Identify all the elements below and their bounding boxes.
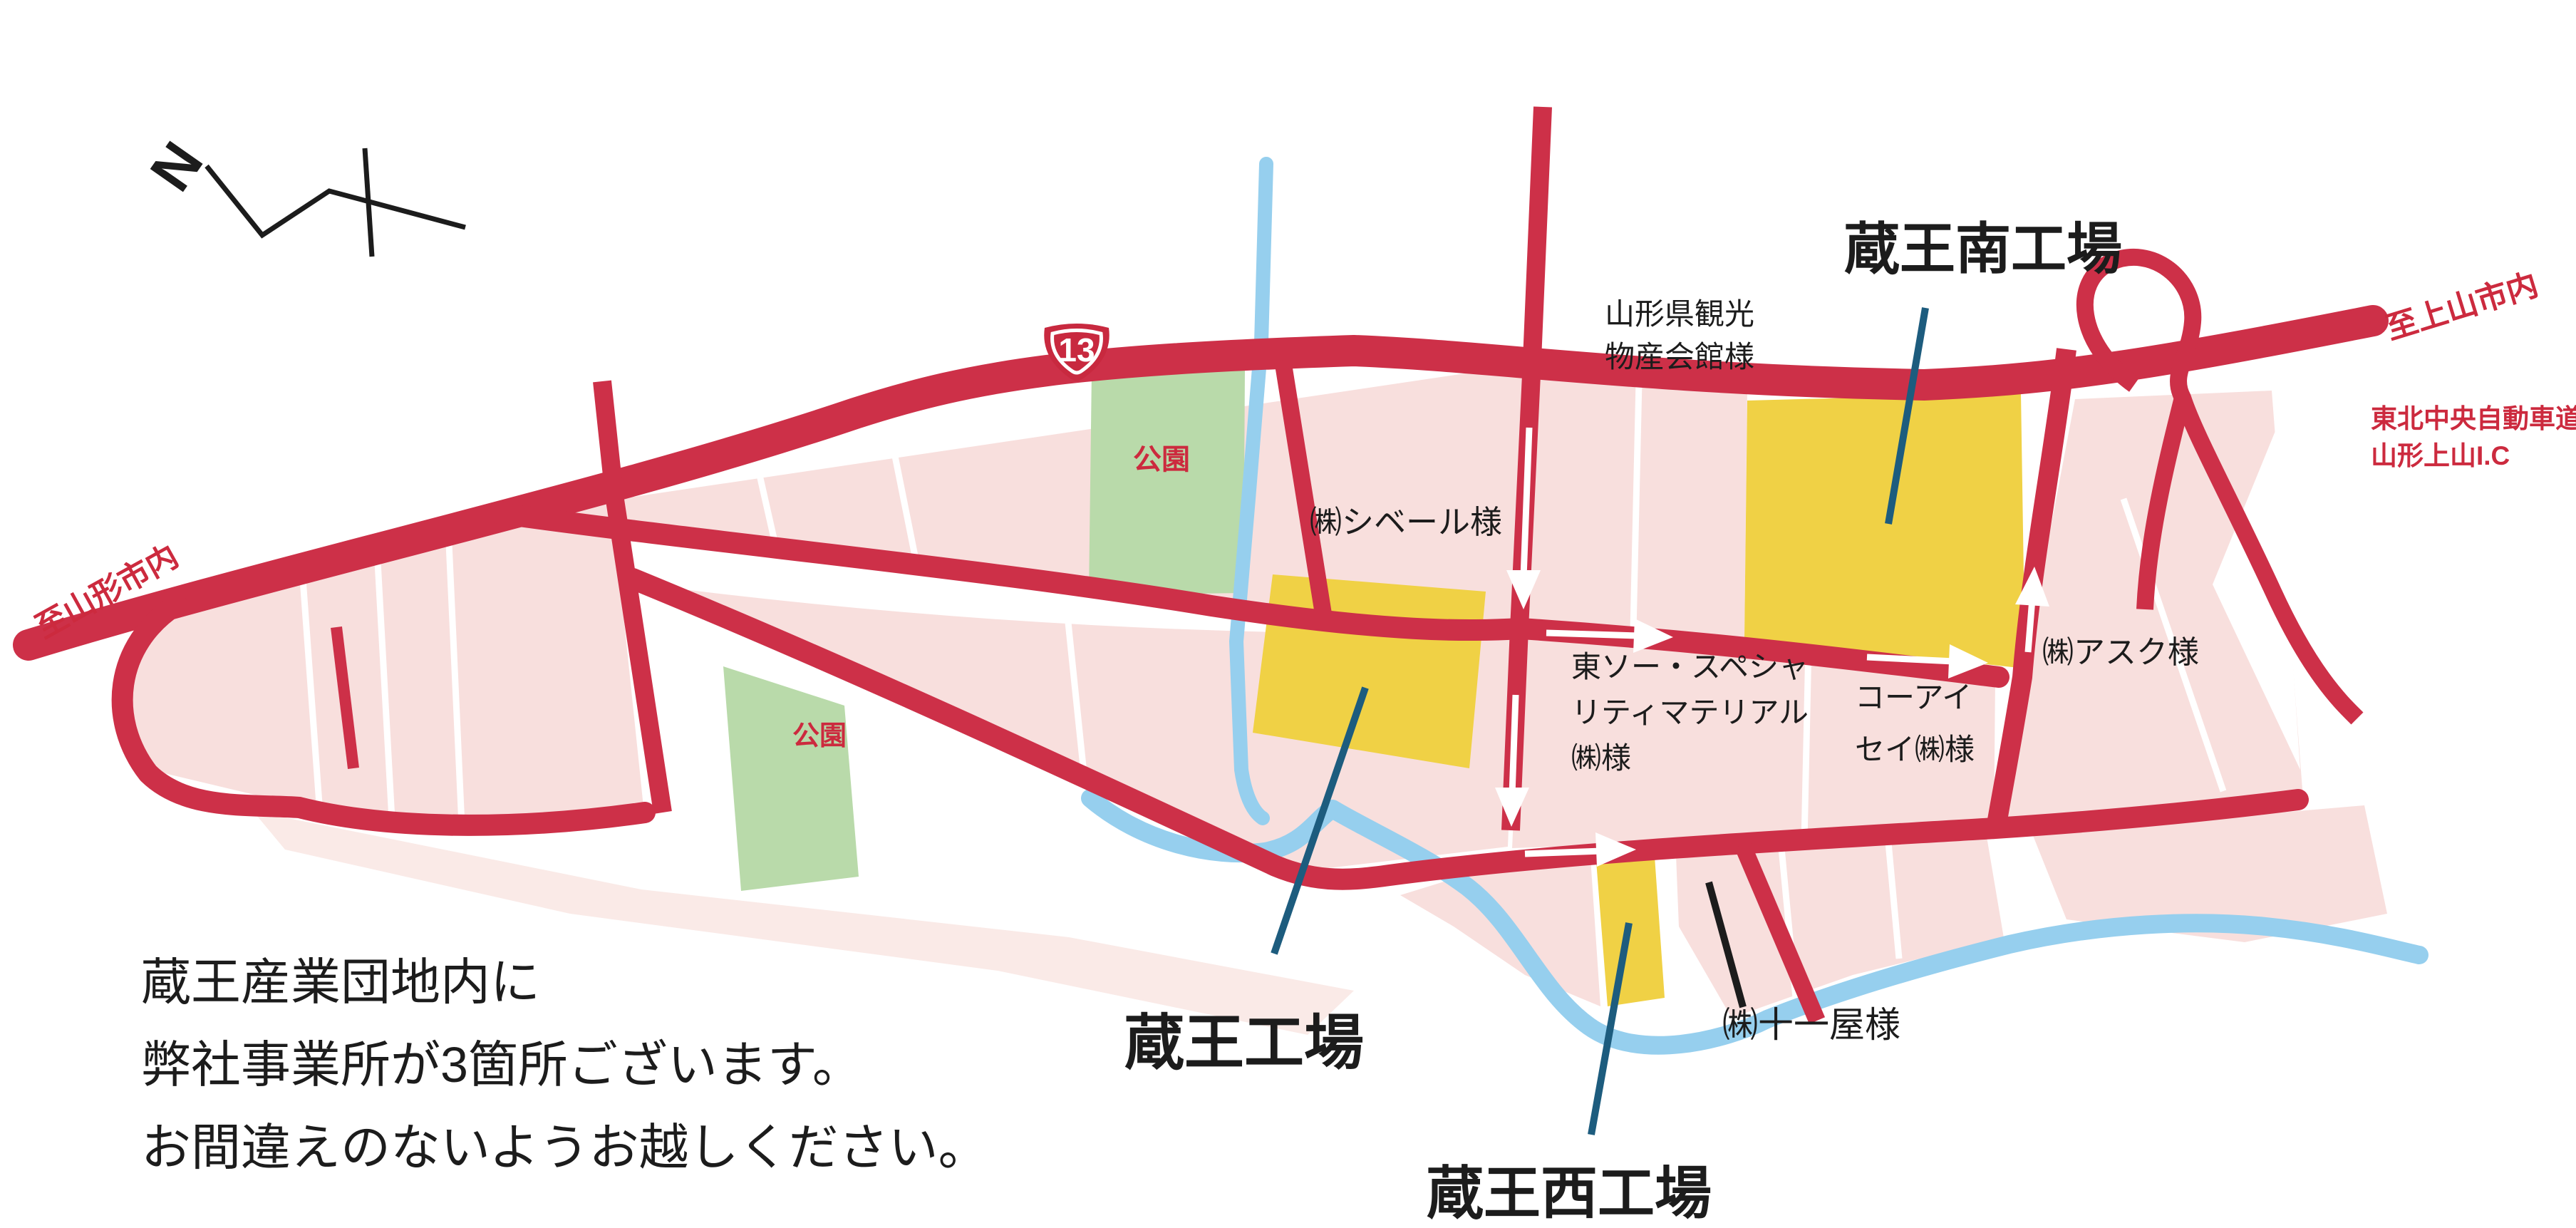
note-text: 蔵王産業団地内に 弊社事業所が3箇所ございます。 お間違えのないようお越しくださ… xyxy=(141,954,988,1175)
note-line1: 蔵王産業団地内に xyxy=(141,954,540,1010)
label-koaisei-line1: コーアイ xyxy=(1855,681,1972,714)
label-expressway-line1: 東北中央自動車道 xyxy=(2371,404,2576,433)
label-to-kaminoyama: 至上山市内 xyxy=(2382,267,2543,346)
park-north-area xyxy=(1089,371,1245,595)
label-tosoh-line2: リティマテリアル xyxy=(1571,696,1809,729)
label-park-west: 公園 xyxy=(792,721,847,751)
label-ask: ㈱アスク様 xyxy=(2042,635,2199,670)
label-tosoh-line3: ㈱様 xyxy=(1571,741,1631,775)
label-bussankaikan-line2: 物産会館様 xyxy=(1605,340,1754,373)
note-line3: お間違えのないようお越しください。 xyxy=(141,1120,988,1175)
compass-north-label: N xyxy=(138,131,216,203)
label-tosoh-line1: 東ソー・スペシャ xyxy=(1571,650,1809,683)
label-koaisei-line2: セイ㈱様 xyxy=(1855,733,1975,766)
label-park-north: 公園 xyxy=(1133,444,1190,475)
compass-needle xyxy=(207,166,465,235)
label-bussankaikan-line1: 山形県観光 xyxy=(1605,297,1754,331)
label-juichiya: ㈱十一屋様 xyxy=(1722,1005,1900,1045)
compass: N xyxy=(138,131,465,257)
label-zao-west-factory: 蔵王西工場 xyxy=(1427,1162,1712,1225)
access-map: N 13 至上山市内 至山形市内 東北中央自動車道 山形上山I.C 公園 公園 … xyxy=(0,0,2576,1228)
park-west-area xyxy=(723,666,859,891)
label-zao-factory: 蔵王工場 xyxy=(1124,1009,1364,1076)
zao-south-factory-building xyxy=(1744,393,2025,669)
label-zao-south-factory: 蔵王南工場 xyxy=(1844,217,2122,280)
access-map-page: N 13 至上山市内 至山形市内 東北中央自動車道 山形上山I.C 公園 公園 … xyxy=(0,0,2576,1228)
note-line2: 弊社事業所が3箇所ございます。 xyxy=(141,1037,862,1093)
route13-shield-number: 13 xyxy=(1058,331,1095,368)
compass-cross-line xyxy=(365,148,372,257)
label-cybele: ㈱シベール様 xyxy=(1310,504,1502,540)
label-expressway-line2: 山形上山I.C xyxy=(2371,441,2510,470)
